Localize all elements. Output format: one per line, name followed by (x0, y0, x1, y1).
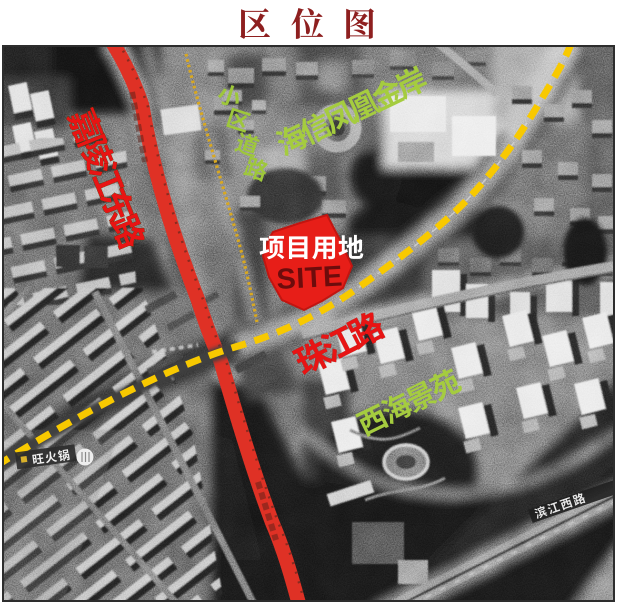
svg-text:SITE: SITE (276, 261, 344, 296)
